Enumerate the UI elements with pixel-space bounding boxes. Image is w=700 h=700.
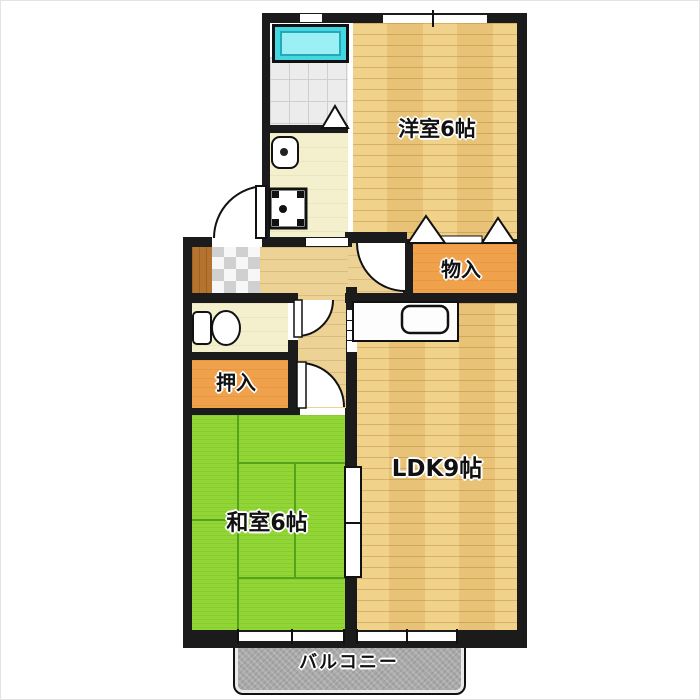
balcony-label: バルコニー	[299, 648, 399, 674]
toilet-icon	[212, 311, 240, 345]
pan-foot	[297, 191, 304, 198]
fixtures-and-doors-layer	[0, 0, 700, 700]
kitchen-sink-icon	[402, 306, 448, 333]
pan-foot	[272, 219, 279, 226]
pan-drain	[279, 205, 287, 213]
pan-foot	[272, 191, 279, 198]
toilet-tank	[193, 312, 211, 344]
washbasin-drain	[280, 148, 288, 156]
floor-plan-canvas: 洋室6帖 物入 LDK9帖 押入 和室6帖 バルコニー	[0, 0, 700, 700]
japanese-room-door-leaf	[297, 362, 306, 408]
western-room-label: 洋室6帖	[398, 113, 476, 143]
front-door-leaf	[256, 186, 266, 238]
storage-folding-door-triangle	[482, 218, 515, 243]
closet-label: 押入	[216, 367, 256, 396]
storage-label: 物入	[441, 254, 481, 283]
storage-folding-door-triangle	[408, 216, 445, 243]
pan-foot	[297, 219, 304, 226]
japanese-room-label: 和室6帖	[226, 505, 307, 537]
ldk-label: LDK9帖	[392, 449, 483, 483]
toilet-door-leaf	[294, 300, 302, 337]
bathroom-folding-door-triangle	[322, 106, 348, 128]
